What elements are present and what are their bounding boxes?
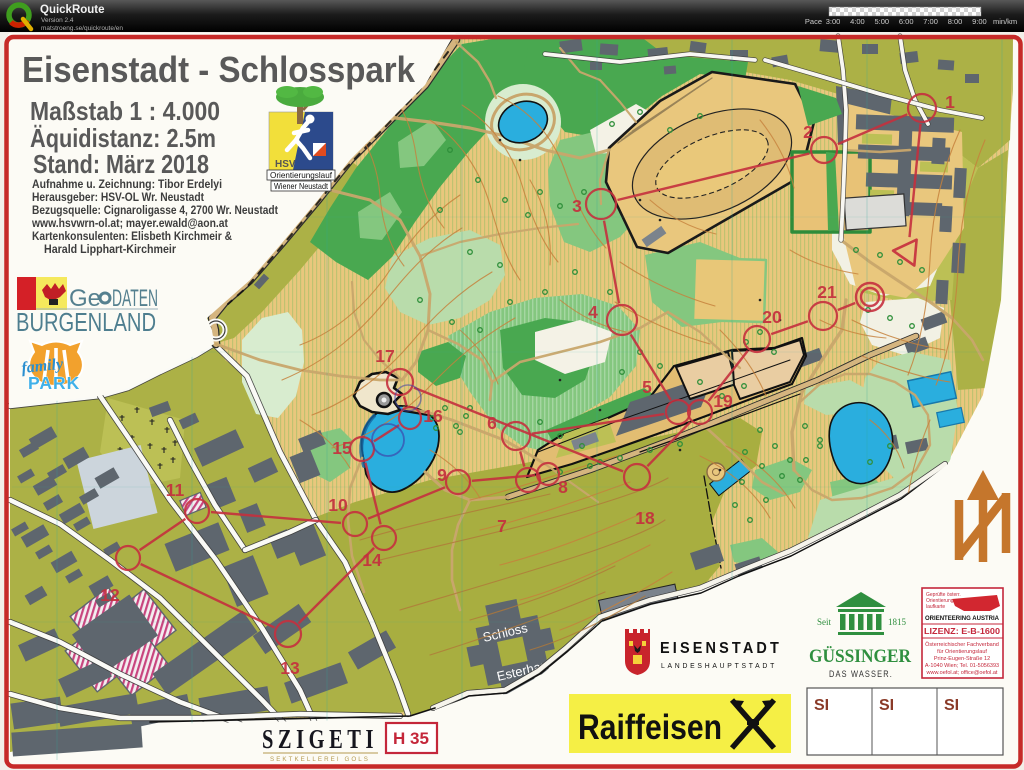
svg-text:10: 10 [328,495,348,515]
svg-text:8:00: 8:00 [948,17,963,26]
svg-text:min/km: min/km [993,17,1017,26]
svg-text:13: 13 [280,658,300,678]
svg-text:matstroeng.se/quickroute/en: matstroeng.se/quickroute/en [41,25,123,32]
svg-text:15: 15 [332,438,352,458]
svg-text:8: 8 [558,477,568,497]
svg-text:7:00: 7:00 [923,17,938,26]
svg-text:Bezugsquelle: Cignaroligasse 4: Bezugsquelle: Cignaroligasse 4, 2700 Wr.… [32,205,278,217]
svg-text:GÜSSINGER: GÜSSINGER [809,646,911,667]
svg-text:Wiener Neustadt: Wiener Neustadt [274,181,329,191]
svg-text:Herausgeber: HSV-OL Wr. Neusta: Herausgeber: HSV-OL Wr. Neustadt [32,192,204,204]
svg-text:LANDESHAUPTSTADT: LANDESHAUPTSTADT [661,661,777,670]
svg-text:6:00: 6:00 [899,17,914,26]
svg-text:SI: SI [814,697,829,714]
svg-text:1: 1 [945,92,955,112]
svg-text:SI: SI [944,697,959,714]
svg-text:Eisenstadt - Schlosspark: Eisenstadt - Schlosspark [22,49,416,90]
svg-text:Prinz-Eugen-Straße 12: Prinz-Eugen-Straße 12 [934,656,990,662]
svg-text:Kartenkonsulenten: Elisbeth Ki: Kartenkonsulenten: Elisbeth Kirchmeir & [32,231,232,243]
svg-text:12: 12 [100,585,120,605]
svg-text:7: 7 [497,516,507,536]
svg-text:H 35: H 35 [393,729,429,748]
svg-text:19: 19 [713,391,733,411]
svg-text:Seit: Seit [817,617,832,627]
svg-text:A-1040 Wien; Tel. 01-5056393: A-1040 Wien; Tel. 01-5056393 [925,663,999,669]
svg-text:SZIGETI: SZIGETI [262,724,378,754]
svg-text:Raiffeisen: Raiffeisen [578,708,722,747]
svg-text:2: 2 [803,122,813,142]
svg-text:SI: SI [879,697,894,714]
svg-text:Orientierungslauf: Orientierungslauf [270,170,333,180]
svg-text:21: 21 [817,282,837,302]
svg-text:EISENSTADT: EISENSTADT [660,640,782,657]
svg-text:20: 20 [762,307,782,327]
svg-text:6: 6 [487,413,497,433]
svg-text:www.hsvwrn-ol.at; mayer.ewald@: www.hsvwrn-ol.at; mayer.ewald@aon.at [31,218,228,230]
svg-text:9: 9 [437,465,447,485]
svg-text:4: 4 [588,302,598,322]
svg-text:ORIENTEERING AUSTRIA: ORIENTEERING AUSTRIA [925,615,999,622]
svg-text:Version 2.4: Version 2.4 [41,17,74,24]
svg-text:11: 11 [166,480,185,500]
svg-text:Aufnahme u. Zeichnung: Tibor E: Aufnahme u. Zeichnung: Tibor Erdelyi [32,179,222,191]
svg-text:Pace: Pace [805,17,822,26]
svg-text:9:00: 9:00 [972,17,987,26]
svg-text:Österreichischer Fachverband: Österreichischer Fachverband [925,641,999,648]
svg-text:Stand: März 2018: Stand: März 2018 [33,149,209,179]
svg-text:BURGENLAND: BURGENLAND [16,307,156,337]
svg-text:Maßstab 1 : 4.000: Maßstab 1 : 4.000 [30,96,220,126]
svg-text:Harald Lipphart-Kirchmeir: Harald Lipphart-Kirchmeir [44,244,176,256]
svg-text:SEKTKELLEREI GOLS: SEKTKELLEREI GOLS [270,757,370,763]
svg-text:www.oefol.at; office@oefol.at: www.oefol.at; office@oefol.at [926,670,998,676]
svg-text:17: 17 [375,346,394,366]
svg-text:18: 18 [635,508,655,528]
svg-text:PARK: PARK [28,373,80,393]
svg-text:DAS WASSER.: DAS WASSER. [829,669,893,680]
svg-text:14: 14 [362,550,382,570]
svg-text:LIZENZ: E-B-1600: LIZENZ: E-B-1600 [924,626,1000,636]
svg-text:5:00: 5:00 [874,17,889,26]
svg-text:5: 5 [642,377,652,397]
svg-text:HSV: HSV [275,159,296,170]
svg-text:laufkarte: laufkarte [926,604,945,610]
svg-text:für Orientierungslauf: für Orientierungslauf [937,649,987,655]
svg-text:4:00: 4:00 [850,17,865,26]
svg-text:3:00: 3:00 [826,17,841,26]
svg-text:3: 3 [572,196,582,216]
svg-text:QuickRoute: QuickRoute [40,4,105,16]
svg-text:16: 16 [423,406,443,426]
svg-text:1815: 1815 [888,617,907,627]
